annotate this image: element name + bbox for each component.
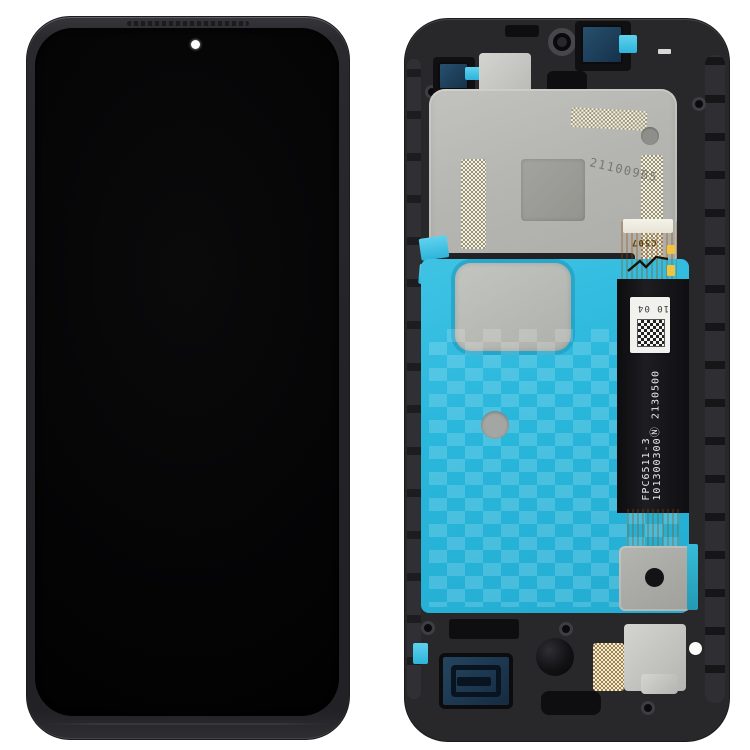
speaker-bar bbox=[457, 677, 491, 686]
plate-hole bbox=[641, 127, 659, 145]
front-camera-hole-icon bbox=[191, 40, 200, 49]
pull-tab bbox=[419, 235, 450, 261]
lcd-screen-glass bbox=[35, 28, 339, 716]
gold-pad bbox=[667, 245, 675, 254]
charging-port-cutout bbox=[541, 691, 601, 715]
cert-code: 2130500 bbox=[651, 370, 662, 419]
vibration-motor bbox=[536, 638, 574, 676]
screw-hole bbox=[559, 622, 573, 636]
product-photo-canvas: 211009B5 C507 10 04 bbox=[0, 0, 750, 750]
frame-cutout bbox=[505, 25, 539, 37]
flex-part-number: FPC6511-3 bbox=[641, 427, 652, 511]
lcd-connector-flex: C507 bbox=[621, 221, 677, 283]
frame-rail-right bbox=[705, 55, 725, 703]
lcd-back-view: 211009B5 C507 10 04 bbox=[404, 18, 730, 742]
connector-code-text: C507 bbox=[631, 237, 657, 247]
frame-rail-left bbox=[407, 59, 421, 699]
thermal-pad bbox=[521, 159, 585, 221]
antenna-contact-pad bbox=[593, 643, 624, 691]
data-matrix-code bbox=[637, 319, 665, 347]
flex-part-text: FPC6511-3 101300300 bbox=[641, 427, 665, 511]
main-flex-cable: 10 04 Ⓝ 2130500 FPC6511-3 101300300 bbox=[617, 279, 689, 513]
flex-connector-stub bbox=[623, 219, 673, 233]
adhesive-strip bbox=[571, 107, 648, 131]
flex-label: 10 04 bbox=[630, 297, 670, 353]
loudspeaker-enclosure bbox=[439, 653, 513, 709]
gold-pad bbox=[667, 265, 675, 276]
screw-hole bbox=[692, 97, 706, 111]
frame-cutout bbox=[449, 619, 519, 639]
front-camera-mount-icon bbox=[548, 28, 576, 56]
screw-hole bbox=[421, 621, 435, 635]
pull-tab bbox=[619, 35, 637, 53]
screw-hole bbox=[641, 701, 655, 715]
bracket-hole bbox=[645, 568, 664, 587]
film-edge-strip bbox=[687, 544, 698, 610]
label-code-text: 10 04 bbox=[637, 303, 669, 313]
flex-trace-squiggle bbox=[626, 253, 670, 275]
metal-bracket bbox=[619, 546, 691, 611]
earpiece-slit bbox=[127, 21, 249, 26]
film-hole bbox=[481, 411, 509, 439]
flex-serial-number: 101300300 bbox=[652, 427, 663, 511]
alignment-dot bbox=[689, 642, 702, 655]
bottom-frame-highlight bbox=[45, 723, 331, 725]
adhesive-strip bbox=[461, 159, 486, 249]
frame-mark bbox=[658, 49, 671, 54]
lcd-front-view bbox=[26, 16, 350, 740]
pull-tab bbox=[413, 643, 428, 664]
small-bracket bbox=[641, 674, 678, 694]
camera-bracket-film bbox=[581, 25, 623, 64]
flex-orange-segment bbox=[627, 509, 679, 549]
